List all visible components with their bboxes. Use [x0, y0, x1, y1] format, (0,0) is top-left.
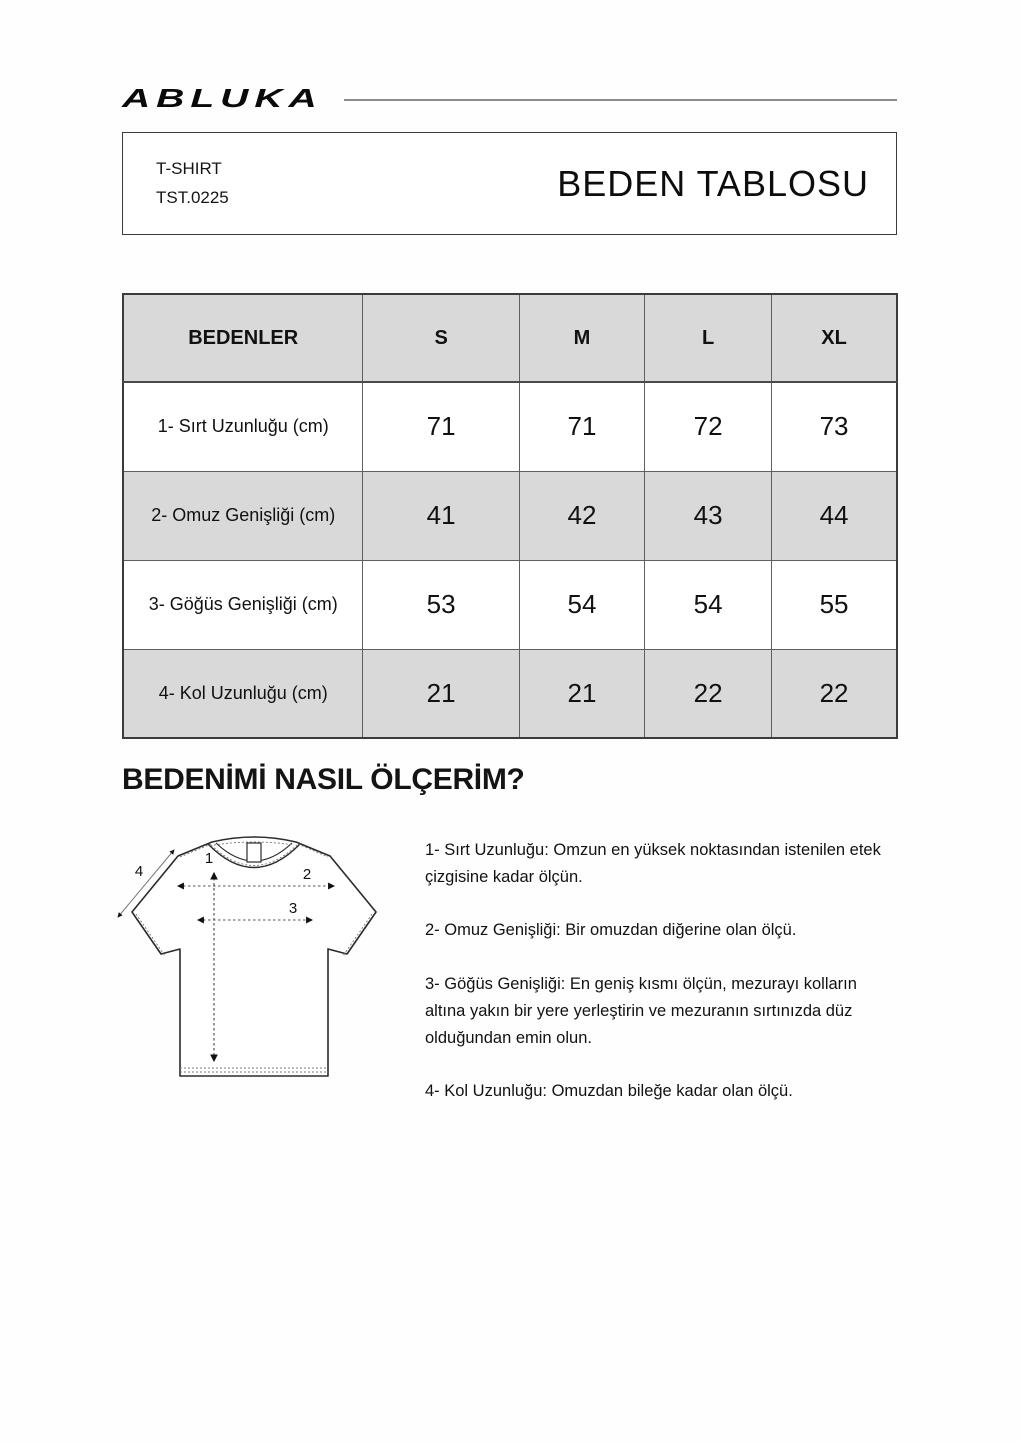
column-header-l: L: [645, 294, 772, 382]
size-chart-page: ABLUKA T-SHIRT TST.0225 BEDEN TABLOSU BE…: [0, 82, 1020, 1442]
measure-instructions: 1- Sırt Uzunluğu: Omzun en yüksek noktas…: [425, 823, 893, 1132]
collar-tag: [247, 843, 261, 862]
row-label: 4- Kol Uzunluğu (cm): [123, 649, 363, 738]
cell-value: 41: [363, 471, 519, 560]
cell-value: 44: [772, 471, 897, 560]
table-row: 4- Kol Uzunluğu (cm) 21 21 22 22: [123, 649, 897, 738]
diagram-label-3: 3: [289, 900, 297, 917]
cell-value: 55: [772, 560, 897, 649]
instruction-shoulder-width: 2- Omuz Genişliği: Bir omuzdan diğerine …: [425, 917, 893, 944]
cell-value: 22: [772, 649, 897, 738]
table-row: 1- Sırt Uzunluğu (cm) 71 71 72 73: [123, 382, 897, 471]
diagram-label-1: 1: [205, 850, 213, 867]
row-label: 1- Sırt Uzunluğu (cm): [123, 382, 363, 471]
tshirt-diagram: 1 2 3 4: [100, 823, 405, 1132]
column-header-s: S: [363, 294, 519, 382]
cell-value: 42: [519, 471, 644, 560]
cell-value: 22: [645, 649, 772, 738]
size-table-header-row: BEDENLER S M L XL: [123, 294, 897, 382]
cell-value: 71: [519, 382, 644, 471]
product-info: T-SHIRT TST.0225: [123, 155, 229, 211]
table-row: 2- Omuz Genişliği (cm) 41 42 43 44: [123, 471, 897, 560]
cell-value: 21: [519, 649, 644, 738]
cell-value: 54: [645, 560, 772, 649]
cell-value: 73: [772, 382, 897, 471]
instruction-chest-width: 3- Göğüs Genişliği: En geniş kısmı ölçün…: [425, 971, 893, 1051]
diagram-label-2: 2: [303, 866, 311, 883]
tshirt-measurement-illustration: 1 2 3 4: [100, 823, 405, 1108]
cell-value: 21: [363, 649, 519, 738]
table-row: 3- Göğüs Genişliği (cm) 53 54 54 55: [123, 560, 897, 649]
instruction-back-length: 1- Sırt Uzunluğu: Omzun en yüksek noktas…: [425, 837, 893, 890]
cell-value: 54: [519, 560, 644, 649]
how-to-measure-section: 1 2 3 4 1- Sırt Uzunluğu: Omzun en yükse…: [100, 823, 1020, 1132]
row-label: 3- Göğüs Genişliği (cm): [123, 560, 363, 649]
cell-value: 71: [363, 382, 519, 471]
column-header-m: M: [519, 294, 644, 382]
tshirt-outline: [132, 837, 376, 1076]
column-header-bedenler: BEDENLER: [123, 294, 363, 382]
product-name: T-SHIRT: [156, 155, 229, 183]
how-to-measure-heading: BEDENİMİ NASIL ÖLÇERİM?: [122, 763, 1020, 797]
product-code: TST.0225: [156, 184, 229, 212]
instruction-sleeve-length: 4- Kol Uzunluğu: Omuzdan bileğe kadar ol…: [425, 1078, 893, 1105]
size-table: BEDENLER S M L XL 1- Sırt Uzunluğu (cm) …: [122, 293, 898, 739]
cell-value: 72: [645, 382, 772, 471]
page-title: BEDEN TABLOSU: [557, 163, 896, 205]
column-header-xl: XL: [772, 294, 897, 382]
brand-header: ABLUKA: [122, 82, 897, 114]
brand-logo: ABLUKA: [122, 83, 455, 114]
cell-value: 43: [645, 471, 772, 560]
row-label: 2- Omuz Genişliği (cm): [123, 471, 363, 560]
title-box: T-SHIRT TST.0225 BEDEN TABLOSU: [122, 132, 897, 235]
diagram-label-4: 4: [135, 863, 143, 880]
cell-value: 53: [363, 560, 519, 649]
